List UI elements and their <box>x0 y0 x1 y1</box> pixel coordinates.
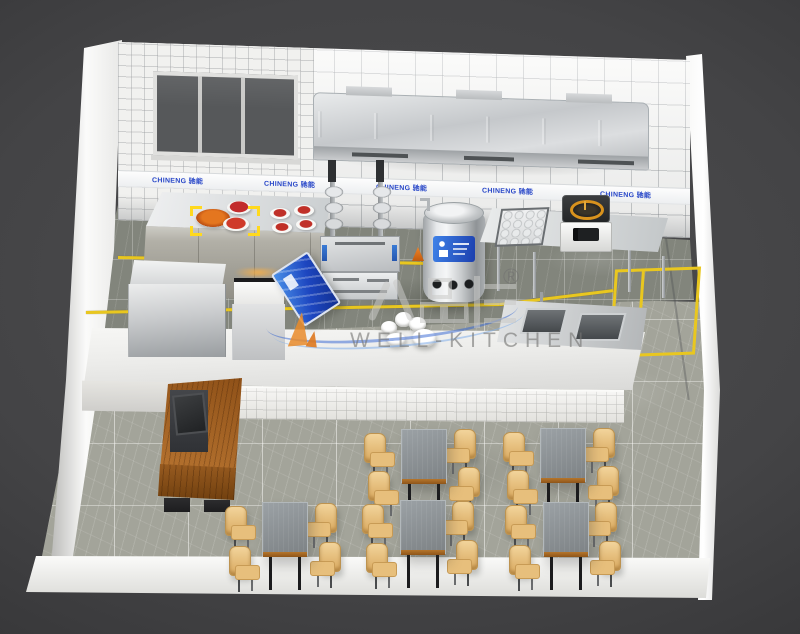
fridge-front-face <box>128 284 226 357</box>
dining-chair <box>229 546 259 592</box>
noodle-cooker-baskets <box>318 184 400 236</box>
dining-table-3 <box>262 502 308 592</box>
induction-cooker-body <box>560 222 612 252</box>
registered-trademark: ® <box>503 264 519 290</box>
wall-banner-2: CHINENG 驰能 <box>264 179 315 191</box>
dining-chair <box>591 541 621 587</box>
service-counter-tiled-front <box>236 386 624 423</box>
hood-duct-tabs <box>314 85 648 104</box>
induction-wok-cooker <box>560 195 612 253</box>
food-plate <box>270 208 290 219</box>
steamer-tray <box>494 207 549 247</box>
dining-chair <box>448 540 478 586</box>
food-plate <box>272 222 292 233</box>
glyph-stroke <box>444 302 468 323</box>
food-plate <box>296 219 316 230</box>
dining-table-4 <box>400 500 446 590</box>
wall-banner-1: CHINENG 驰能 <box>152 175 203 187</box>
selection-bracket <box>190 206 260 236</box>
dining-chair <box>311 542 341 588</box>
glyph-stroke <box>392 278 415 321</box>
wall-faucet <box>427 198 430 211</box>
glyph-stroke <box>368 280 391 321</box>
watermark-cjk-glyphs <box>368 272 548 336</box>
noodle-cooker-body <box>320 236 400 272</box>
dining-chair <box>509 545 539 591</box>
kitchen-render-canvas: CHINENG 驰能 CHINENG 驰能 CHINENG 驰能 CHINENG… <box>0 0 800 634</box>
watermark-brand-text: WELL-KITCHEN <box>350 329 590 353</box>
food-plate <box>294 205 314 216</box>
glyph-stroke <box>420 302 444 323</box>
dining-chair <box>366 543 396 589</box>
glyph-stroke <box>428 278 452 299</box>
dining-table-5 <box>543 502 589 592</box>
wall-banner-4: CHINENG 驰能 <box>482 185 533 197</box>
induction-cooker-top <box>562 195 610 223</box>
pos-monitor <box>172 392 208 435</box>
worktop-fridge-unit <box>128 256 228 357</box>
window <box>153 71 298 160</box>
